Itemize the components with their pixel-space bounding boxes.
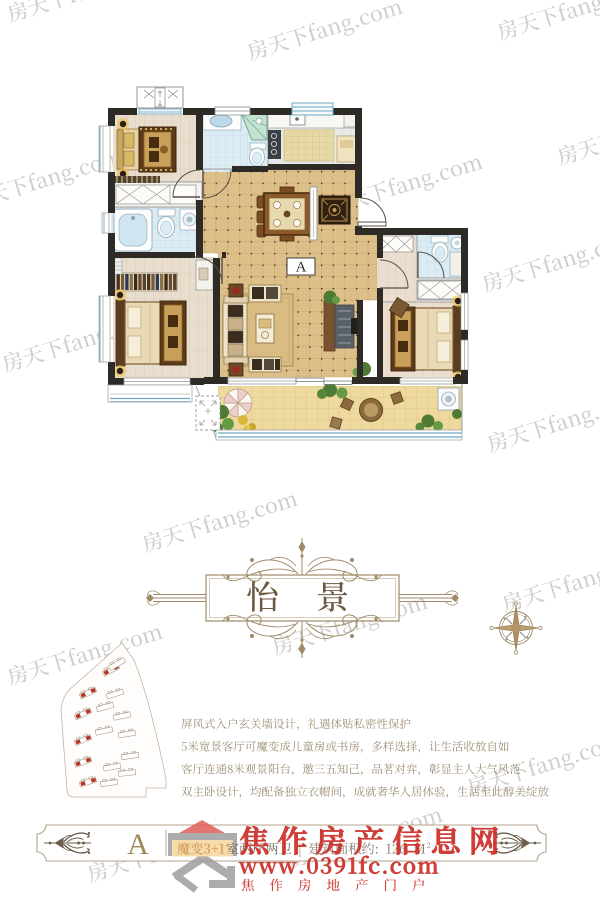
svg-text:A: A	[296, 260, 307, 276]
svg-text:A: A	[127, 828, 149, 861]
